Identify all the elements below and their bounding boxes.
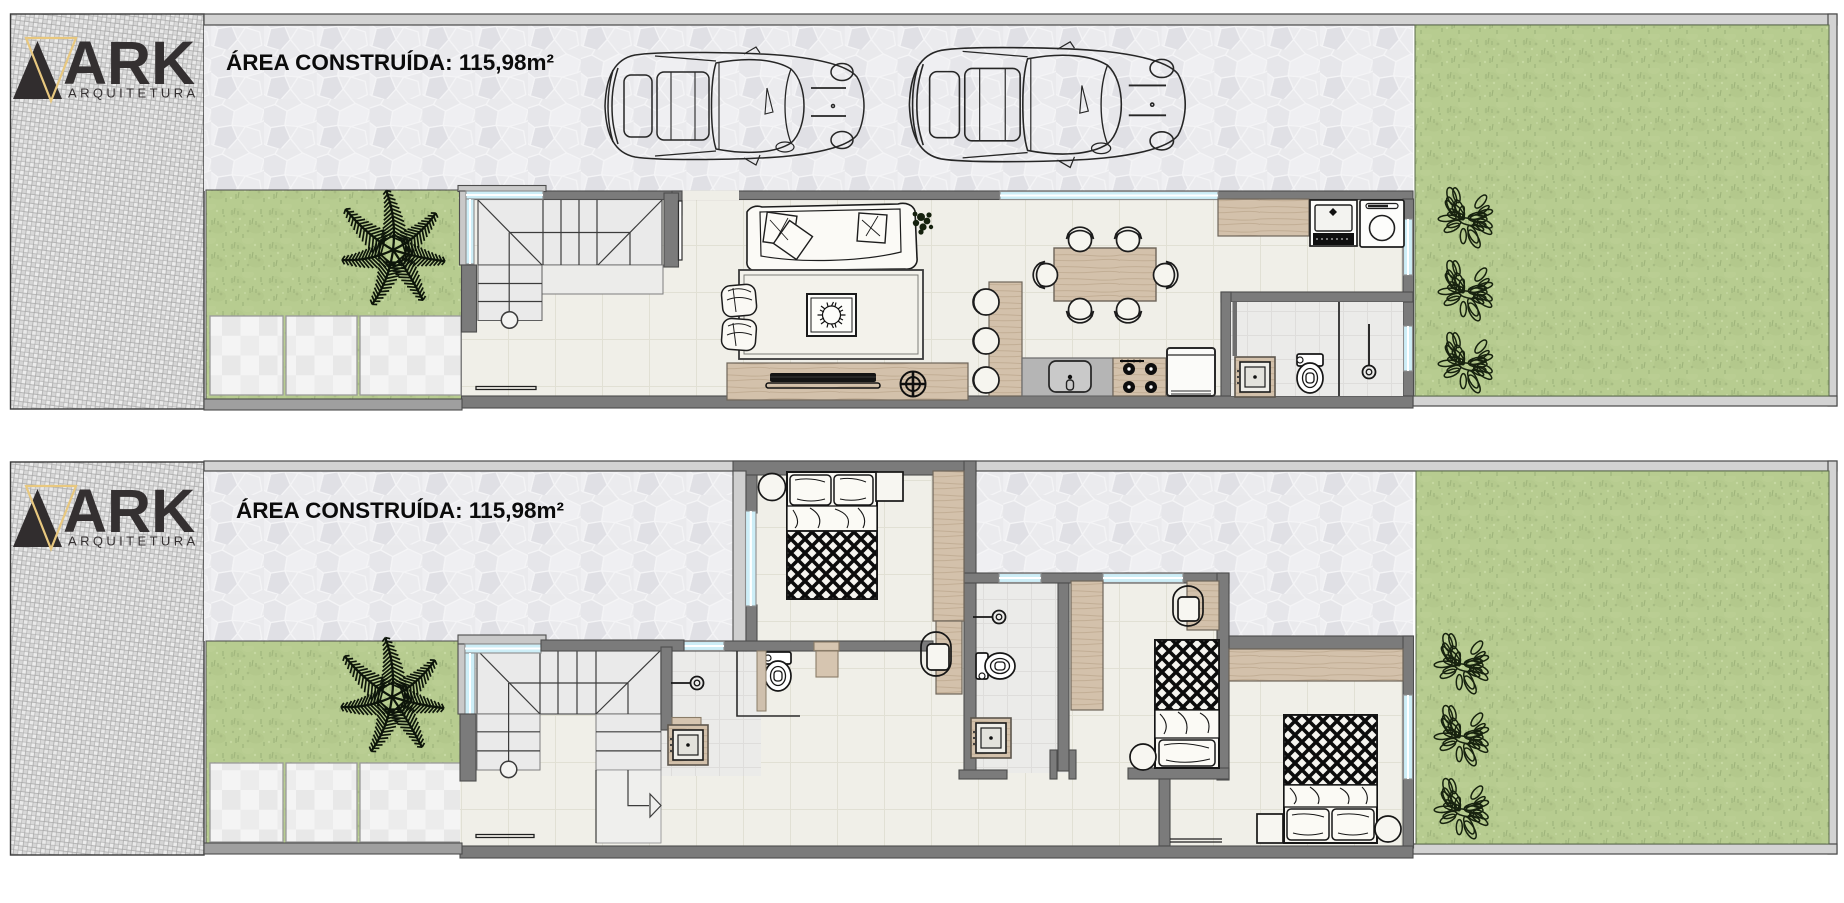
svg-text:ÁREA CONSTRUÍDA: 115,98m²: ÁREA CONSTRUÍDA: 115,98m² xyxy=(236,498,564,523)
svg-text:ÁREA CONSTRUÍDA: 115,98m²: ÁREA CONSTRUÍDA: 115,98m² xyxy=(226,50,554,75)
